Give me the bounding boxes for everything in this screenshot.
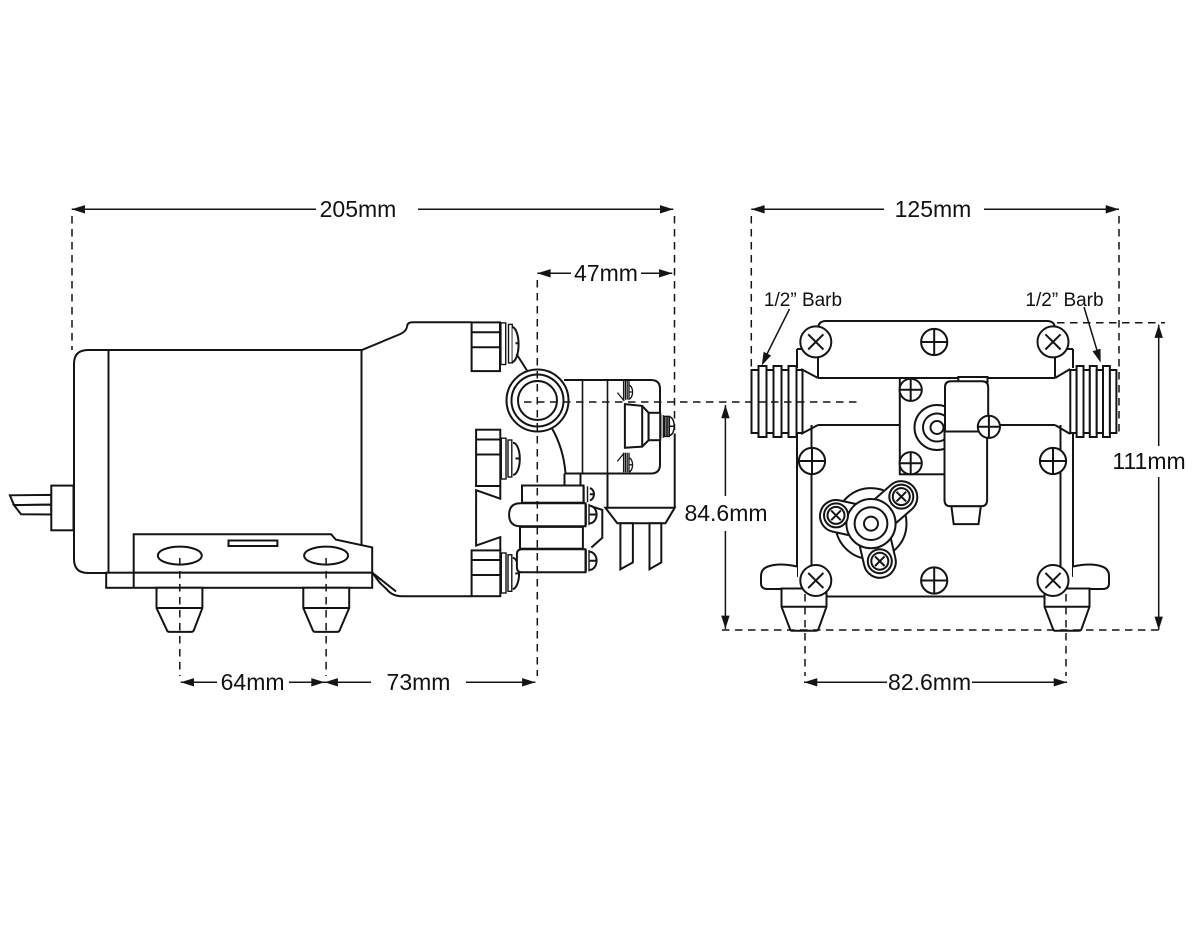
svg-text:64mm: 64mm xyxy=(221,669,285,695)
svg-text:111mm: 111mm xyxy=(1112,448,1185,474)
svg-text:205mm: 205mm xyxy=(320,196,397,222)
svg-text:1/2” Barb: 1/2” Barb xyxy=(764,290,842,311)
svg-text:82.6mm: 82.6mm xyxy=(888,669,971,695)
svg-text:125mm: 125mm xyxy=(895,196,972,222)
svg-text:1/2” Barb: 1/2” Barb xyxy=(1025,290,1103,311)
svg-text:84.6mm: 84.6mm xyxy=(684,500,767,526)
svg-text:47mm: 47mm xyxy=(574,260,638,286)
svg-text:73mm: 73mm xyxy=(387,669,451,695)
